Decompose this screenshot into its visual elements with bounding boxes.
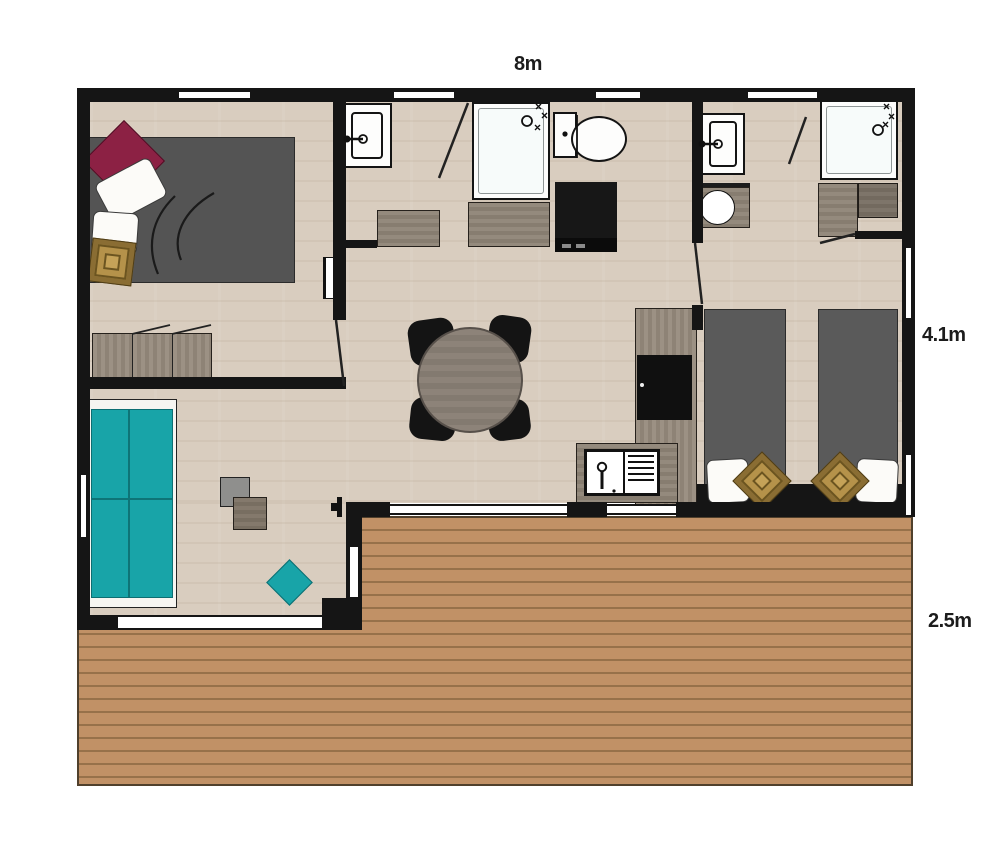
door-swing-icon [439,103,468,178]
line-overlay [0,0,1000,844]
shower-controls-icon [873,125,883,135]
bed-decor-arc [178,193,214,260]
faucet-icon [598,463,606,471]
dimension-height-label: 4.1m [922,324,966,347]
door-swing-icon [336,320,344,386]
floor-plan-canvas: 8m 4.1m 2.5m [0,0,1000,844]
flush-button [562,131,567,136]
door-swing-icon [820,234,855,243]
wardrobe-door-line [132,325,170,334]
shower-controls-icon [522,116,532,126]
faucet-icon [612,489,615,492]
door-swing-icon [695,243,702,304]
shower-controls-icon [535,104,547,130]
door-swing-icon [789,117,806,164]
dimension-width-label: 8m [500,53,556,76]
dimension-terrace-label: 2.5m [928,610,972,633]
wardrobe-door-line [172,325,211,334]
bed-decor-arc [152,196,175,274]
shower-controls-icon [883,104,894,127]
